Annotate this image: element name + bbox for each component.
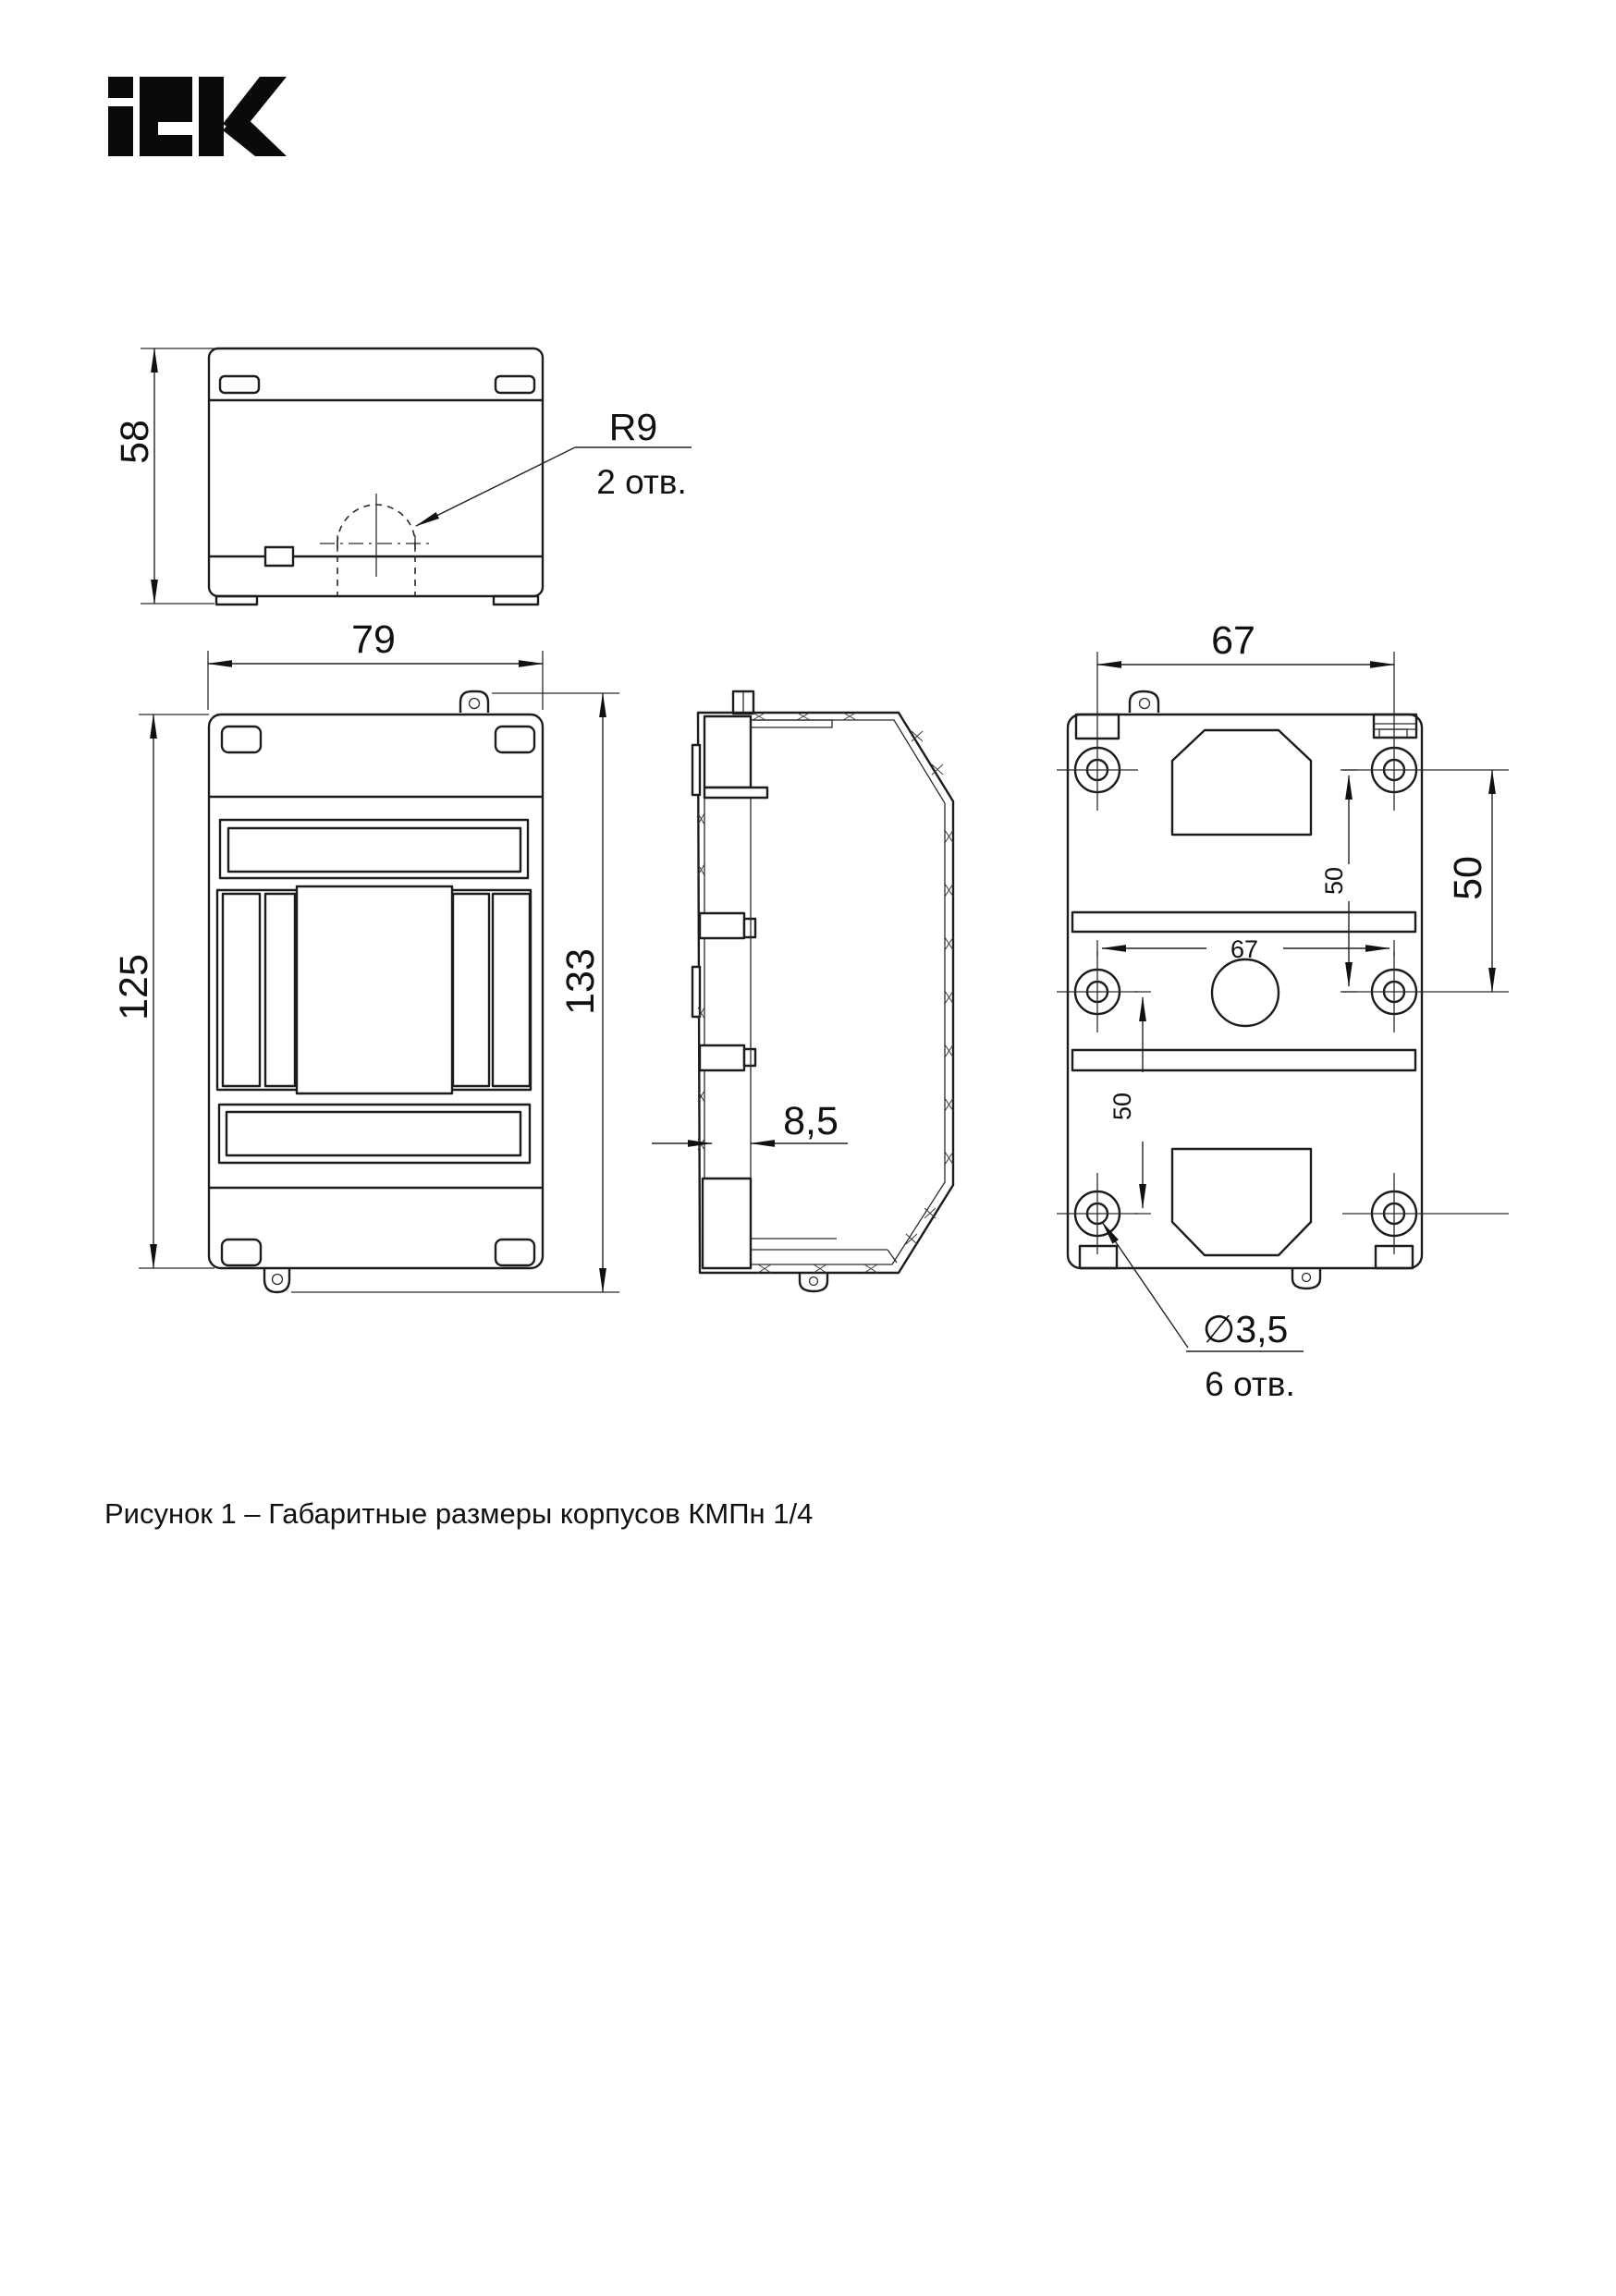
back-bottom-tab <box>1292 1268 1320 1288</box>
front-clip-bl <box>222 1240 261 1265</box>
dim-front-width: 79 <box>208 617 543 710</box>
callout-dia-count: 6 отв. <box>1205 1365 1295 1403</box>
callout-r9-count: 2 отв. <box>596 463 687 501</box>
dim-label-50-inner-bottom: 50 <box>1108 1093 1136 1120</box>
engineering-drawing: 58 R9 2 отв. <box>0 0 1616 2296</box>
dim-label-58: 58 <box>113 420 157 464</box>
dim-label-67-top: 67 <box>1211 618 1255 663</box>
dim-label-50-right: 50 <box>1446 856 1490 900</box>
side-view <box>692 691 953 1291</box>
figure-caption: Рисунок 1 – Габаритные размеры корпусов … <box>104 1497 813 1530</box>
back-knockout-top <box>1172 730 1311 835</box>
back-top-tab <box>1130 691 1158 713</box>
front-clip-tl <box>222 727 261 752</box>
iek-logo <box>108 77 287 156</box>
callout-hole-diameter: ∅3,5 6 отв. <box>1102 1222 1304 1403</box>
callout-r9-label: R9 <box>609 406 657 448</box>
side-hinge-block-bottom <box>703 1179 751 1268</box>
dim-front-body-height: 125 <box>112 714 214 1268</box>
side-bump-top <box>692 745 700 795</box>
top-view-latch <box>265 547 293 566</box>
dim-top-height: 58 <box>113 348 214 604</box>
dim-back-pitch-right: 50 <box>1446 770 1492 992</box>
dim-label-50-inner-top: 50 <box>1320 867 1348 895</box>
front-top-tab <box>460 691 488 713</box>
dim-back-span-top: 67 <box>1097 618 1394 729</box>
dim-side-depth: 8,5 <box>652 1099 848 1143</box>
dim-back-pitch-inner-top: 50 <box>1320 770 1357 992</box>
din-module-area <box>217 886 531 1093</box>
front-bottom-tab <box>264 1268 289 1292</box>
dim-label-79: 79 <box>351 617 396 662</box>
top-view <box>209 348 543 605</box>
front-clip-tr <box>496 727 534 752</box>
dim-label-67-inner: 67 <box>1230 935 1258 963</box>
back-rib-top <box>1072 912 1415 932</box>
side-inner-ledge <box>744 720 832 727</box>
dim-back-pitch-inner-bottom: 50 <box>1108 992 1151 1214</box>
drawing-page: 58 R9 2 отв. <box>0 0 1616 2296</box>
side-din-ledge-bottom <box>700 1045 744 1070</box>
back-view <box>1057 691 1509 1288</box>
side-hinge-block-top <box>704 716 751 788</box>
front-window-bottom <box>219 1105 530 1163</box>
dim-label-125: 125 <box>112 954 156 1020</box>
front-view <box>209 691 543 1292</box>
dim-back-span-inner: 67 <box>1097 935 1394 963</box>
front-clip-br <box>496 1240 534 1265</box>
back-knockout-bottom <box>1172 1149 1311 1255</box>
mounting-holes <box>1057 729 1509 1254</box>
top-view-foot-left <box>216 596 257 605</box>
side-din-ledge-top <box>700 913 744 938</box>
back-notch-bl <box>1080 1246 1117 1268</box>
back-slot-tr <box>1374 714 1416 738</box>
callout-dia-label: ∅3,5 <box>1203 1308 1289 1350</box>
knockout-arch <box>320 494 433 596</box>
dim-label-8-5: 8,5 <box>783 1099 839 1143</box>
callout-r9: R9 2 отв. <box>416 406 692 526</box>
back-rib-bottom <box>1072 1050 1415 1070</box>
top-view-clip-left <box>220 376 259 393</box>
top-view-clip-right <box>496 376 534 393</box>
side-bottom-tab <box>800 1273 827 1291</box>
dim-label-133: 133 <box>558 948 603 1015</box>
top-view-foot-right <box>494 596 538 605</box>
back-knockout-circle <box>1212 959 1279 1026</box>
